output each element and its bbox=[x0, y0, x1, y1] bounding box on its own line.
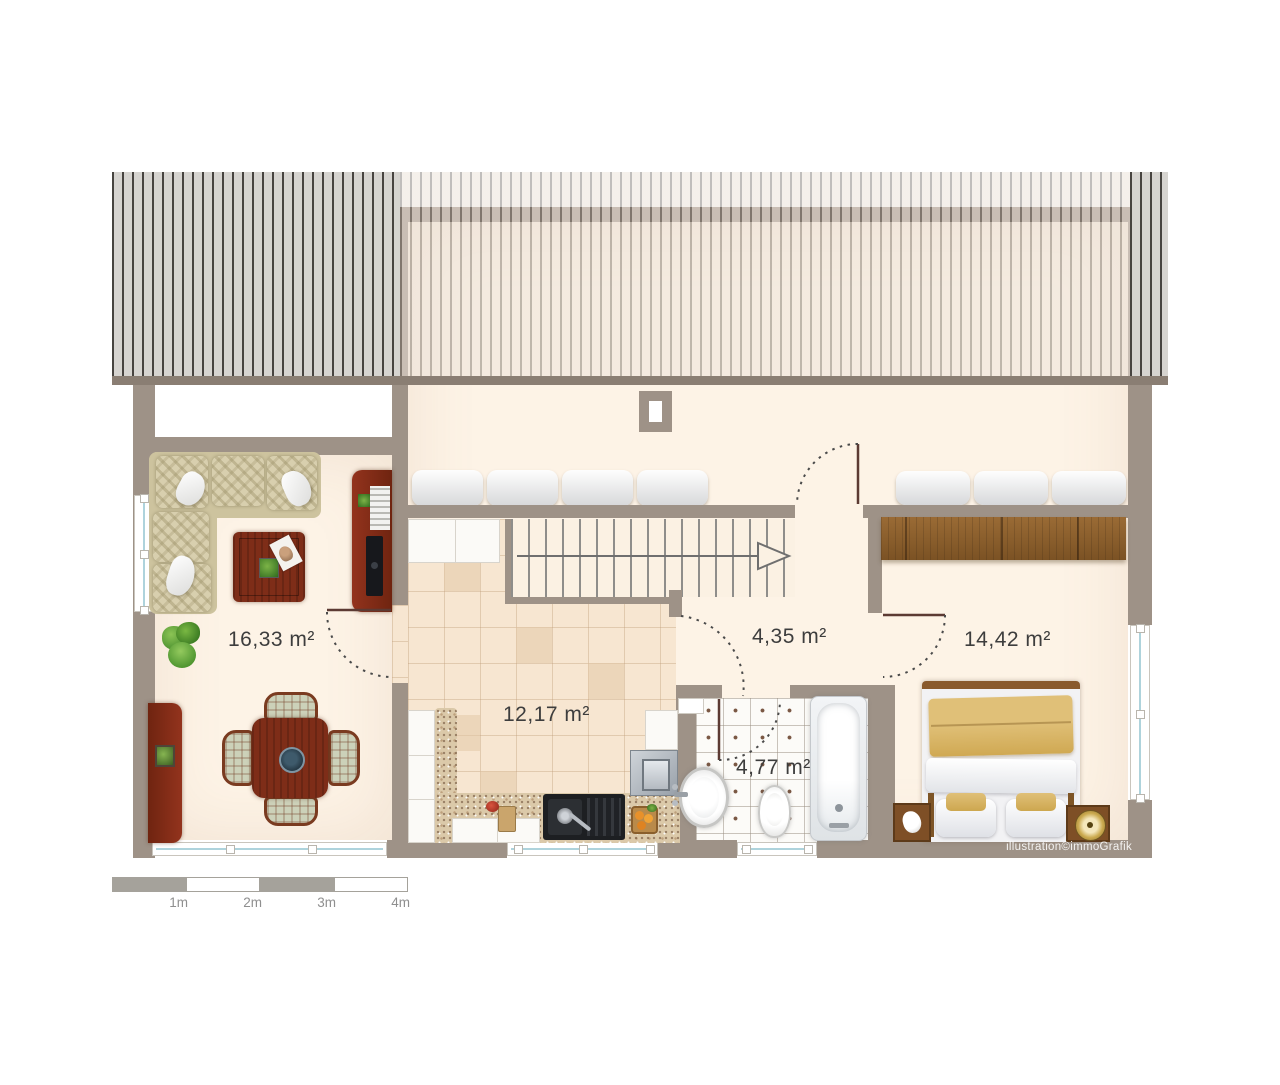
coffee-table bbox=[233, 532, 305, 602]
basin-tap-cross bbox=[672, 800, 678, 806]
tv-logo bbox=[371, 562, 378, 569]
window-dining-bottom bbox=[152, 842, 387, 856]
wall-stub-kitchen-hall bbox=[669, 590, 682, 617]
tub-faucet bbox=[835, 804, 843, 812]
wall-bath-right bbox=[868, 685, 895, 843]
dining-set bbox=[220, 690, 358, 828]
dining-table bbox=[252, 718, 328, 798]
scale-segment bbox=[260, 877, 334, 892]
basin-faucet bbox=[674, 792, 688, 797]
tv-sideboard bbox=[352, 470, 392, 612]
nightstand-left bbox=[893, 803, 931, 842]
kitchen-left-cabinets bbox=[408, 710, 435, 843]
scale-label-4m: 4m bbox=[368, 895, 410, 910]
accent-pillow-gold bbox=[946, 793, 986, 811]
window-handle bbox=[742, 845, 751, 854]
tile-shade bbox=[588, 663, 624, 699]
kitchen-right-cabinet bbox=[645, 710, 678, 750]
accent-pillow-gold bbox=[1016, 793, 1056, 811]
stove bbox=[630, 750, 678, 796]
bed-duvet bbox=[926, 758, 1076, 794]
wall-divider-living-kitchen-lower bbox=[392, 683, 408, 843]
fruit-basket bbox=[631, 806, 658, 834]
storage-cushion bbox=[896, 471, 970, 505]
scale-segment bbox=[112, 877, 186, 892]
plant-foliage bbox=[176, 622, 200, 644]
storage-cushion bbox=[1052, 471, 1126, 505]
storage-cushion bbox=[974, 471, 1048, 505]
table-bowl bbox=[279, 747, 305, 773]
window-handle bbox=[646, 845, 655, 854]
dining-chair-left bbox=[222, 730, 254, 786]
tile-shade bbox=[516, 627, 552, 663]
tv-screen bbox=[366, 536, 383, 596]
sideboard-plant bbox=[358, 494, 370, 507]
toilet bbox=[758, 785, 791, 838]
window-handle bbox=[804, 845, 813, 854]
red-pot bbox=[486, 801, 499, 812]
scale-label-3m: 3m bbox=[294, 895, 336, 910]
wall-hall-bedroom bbox=[868, 518, 882, 613]
kitchen-corner-counter bbox=[408, 519, 500, 563]
clock-center bbox=[1087, 822, 1093, 828]
book-stack bbox=[370, 486, 390, 530]
window-handle bbox=[514, 845, 523, 854]
kitchen-sink bbox=[543, 794, 625, 840]
cabinet-divider bbox=[455, 520, 456, 562]
cabinet-divider bbox=[409, 799, 434, 800]
wardrobe-dresser bbox=[881, 517, 1126, 560]
window-handle bbox=[226, 845, 235, 854]
herb-sprig bbox=[647, 804, 657, 812]
double-bed bbox=[922, 681, 1080, 842]
wall-bath-top-left bbox=[676, 685, 722, 698]
window-handle bbox=[1136, 624, 1145, 633]
cutting-board bbox=[498, 806, 516, 832]
floor-plan-canvas: 16,33 m² 12,17 m² 4,35 m² 4,77 m² 14,42 … bbox=[0, 0, 1280, 1085]
illustration-credit: illustration©immoGrafik bbox=[900, 841, 1132, 853]
window-bedroom-right bbox=[1130, 625, 1150, 800]
tub-basin bbox=[817, 703, 860, 832]
magazine-photo bbox=[277, 544, 296, 563]
scale-bar: 1m 2m 3m 4m bbox=[112, 877, 408, 917]
fruit bbox=[635, 811, 644, 820]
storage-cushion bbox=[487, 470, 558, 506]
window-bath-bottom bbox=[737, 842, 817, 856]
room-label-kitchen: 12,17 m² bbox=[503, 703, 590, 727]
eave-void bbox=[155, 385, 392, 437]
wardrobe-divider bbox=[1077, 517, 1079, 560]
toilet-bowl bbox=[765, 793, 784, 826]
scale-label-1m: 1m bbox=[146, 895, 188, 910]
stove-inner bbox=[642, 759, 670, 791]
kitchen-bottom-cabinet-fronts bbox=[452, 818, 540, 843]
room-label-bathroom: 4,77 m² bbox=[736, 756, 811, 780]
roof-right-section bbox=[1130, 172, 1168, 384]
window-glass bbox=[156, 848, 383, 850]
bed-footboard bbox=[922, 681, 1080, 689]
scale-label-2m: 2m bbox=[220, 895, 262, 910]
cabinet-divider bbox=[409, 755, 434, 756]
roof-over-interior bbox=[400, 172, 1130, 384]
storage-cushion bbox=[637, 470, 708, 506]
fruit bbox=[637, 821, 646, 830]
window-handle bbox=[1136, 710, 1145, 719]
room-label-living: 16,33 m² bbox=[228, 628, 315, 652]
knee-wall-left bbox=[398, 505, 795, 518]
scale-segment bbox=[334, 877, 408, 892]
window-kitchen-bottom bbox=[507, 842, 658, 856]
window-handle bbox=[579, 845, 588, 854]
roof-left-section bbox=[112, 172, 400, 384]
dining-chair-bottom bbox=[264, 796, 318, 826]
storage-cushion bbox=[562, 470, 633, 506]
chimney bbox=[639, 391, 672, 432]
stairs bbox=[505, 519, 795, 597]
window-glass bbox=[741, 848, 813, 850]
kitchen-door-threshold bbox=[392, 605, 408, 683]
window-handle bbox=[140, 550, 149, 559]
wardrobe-divider bbox=[1001, 517, 1003, 560]
storage-cushion bbox=[412, 470, 483, 506]
basin-tap-cross bbox=[672, 784, 678, 790]
window-handle bbox=[1136, 794, 1145, 803]
roof-eave-edge bbox=[112, 376, 1168, 385]
bathtub bbox=[810, 696, 867, 841]
room-label-bedroom: 14,42 m² bbox=[964, 628, 1051, 652]
basin-inner bbox=[689, 777, 719, 818]
scale-segment bbox=[186, 877, 260, 892]
dining-chair-right bbox=[328, 730, 360, 786]
wardrobe-divider bbox=[905, 517, 907, 560]
window-handle bbox=[140, 606, 149, 615]
table-plant bbox=[259, 558, 279, 578]
dining-sideboard bbox=[148, 703, 182, 843]
nightstand-right bbox=[1066, 805, 1110, 842]
room-label-hallway: 4,35 m² bbox=[752, 625, 827, 649]
window-handle bbox=[140, 494, 149, 503]
sideboard-plant-box bbox=[155, 745, 175, 767]
alarm-clock bbox=[1075, 810, 1106, 841]
potted-plant bbox=[160, 622, 204, 674]
bedside-lamp bbox=[901, 809, 924, 835]
sofa-cushion bbox=[212, 456, 264, 506]
tub-tap bbox=[829, 823, 849, 828]
plant-foliage bbox=[168, 642, 196, 668]
stairs-bottom-edge bbox=[505, 597, 681, 604]
fruit bbox=[644, 814, 653, 823]
drainboard bbox=[587, 798, 621, 836]
window-handle bbox=[308, 845, 317, 854]
washbasin bbox=[679, 767, 729, 828]
bath-shelf-niche bbox=[678, 698, 704, 714]
